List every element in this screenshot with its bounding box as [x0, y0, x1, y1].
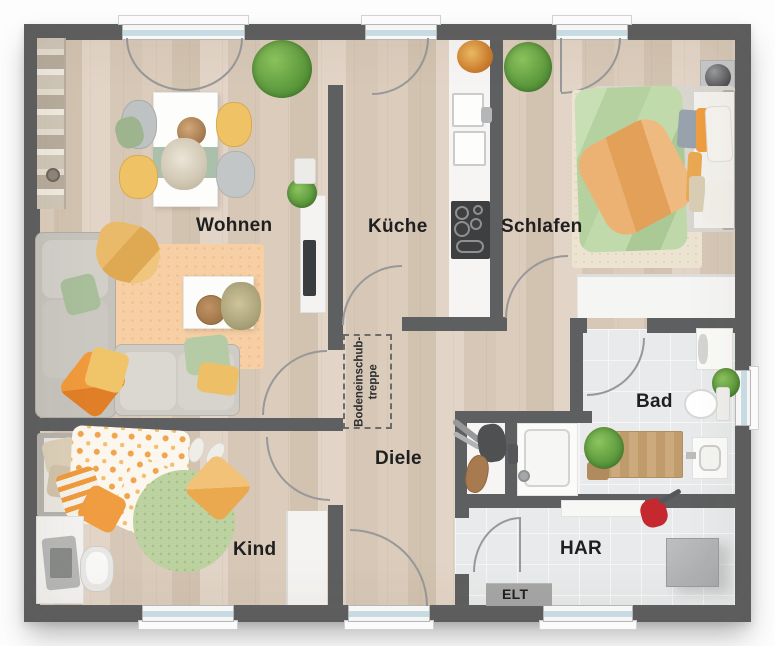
cooktop-burner-1 [455, 206, 469, 220]
tv-screen [303, 240, 316, 296]
wall-kitchen-bedroom [490, 37, 503, 331]
dining-chair-yellow-2 [119, 155, 158, 199]
bath-sink-basin [699, 445, 721, 471]
bedroom-french-door-panel [560, 38, 562, 92]
entrance-door [348, 605, 430, 622]
floorplan-image: Bodeneinschub- treppe Wohnen Küche Schla… [0, 0, 775, 646]
shower-drain [518, 470, 530, 482]
child-window [142, 605, 234, 622]
bath-sink-faucet [686, 452, 696, 459]
wall-living-kitchen [328, 85, 343, 350]
cooktop-burner-4 [454, 221, 470, 237]
attic-ladder-outline: Bodeneinschub- treppe [343, 334, 392, 429]
desk-chair-seat [86, 552, 108, 584]
bedroom-plant [504, 42, 552, 92]
kitchen-sink-basin-1 [452, 93, 484, 127]
room-label-electrical: ELT [502, 586, 528, 602]
wall-child-hallway [328, 505, 343, 605]
utility-shelf [561, 500, 645, 517]
bathroom-plant-large [584, 427, 624, 469]
dried-plant-coffee-table [221, 282, 261, 330]
toilet-bowl [684, 389, 718, 419]
utility-door [543, 605, 633, 622]
wall-bedroom-south-a [570, 318, 587, 333]
kitchen-faucet [481, 107, 492, 123]
attic-ladder-label: Bodeneinschub- treppe [354, 336, 382, 426]
floorplan-canvas: Bodeneinschub- treppe Wohnen Küche Schla… [24, 24, 751, 622]
kitchen-sink-basin-2 [453, 131, 486, 166]
wall-shower-north [455, 411, 592, 423]
dried-flowers-centerpiece [161, 138, 207, 190]
room-label-child: Kind [233, 539, 276, 561]
room-label-hallway: Diele [375, 448, 422, 470]
speaker-box [294, 158, 316, 184]
dining-chair-gray-2 [216, 151, 255, 198]
shower-fixture [508, 444, 518, 464]
shower-tray-inner [524, 429, 570, 487]
camera-decor [46, 168, 60, 182]
bedroom-wardrobe [577, 274, 735, 318]
bed-pillow-white-2 [702, 179, 734, 226]
cooktop-burner-2 [473, 205, 483, 215]
toilet-paper-roll [698, 334, 708, 364]
room-label-kitchen: Küche [368, 216, 428, 238]
water-heater [666, 538, 719, 587]
wall-utility-west-a [455, 508, 469, 518]
pillow-yellow-seat [196, 361, 240, 396]
room-label-living: Wohnen [196, 215, 272, 237]
bed-pillow-white-1 [705, 105, 734, 162]
toilet-tank [716, 387, 730, 421]
wall-right [735, 24, 751, 622]
kitchen-counter-floor [449, 37, 490, 318]
dining-chair-yellow-1 [216, 102, 252, 147]
wall-utility-west-b [455, 574, 469, 605]
room-label-bathroom: Bad [636, 391, 673, 413]
room-label-bedroom: Schlafen [501, 216, 583, 238]
laptop-screen [50, 548, 72, 578]
cooktop-burner-oval [456, 240, 484, 253]
cooktop-burner-3 [470, 218, 482, 230]
wall-bath-west [570, 333, 583, 413]
child-wardrobe [286, 511, 327, 605]
room-label-utility: HAR [560, 538, 602, 560]
fruit-bowl [457, 40, 493, 73]
living-plant [252, 40, 312, 98]
bookshelf [37, 38, 66, 209]
